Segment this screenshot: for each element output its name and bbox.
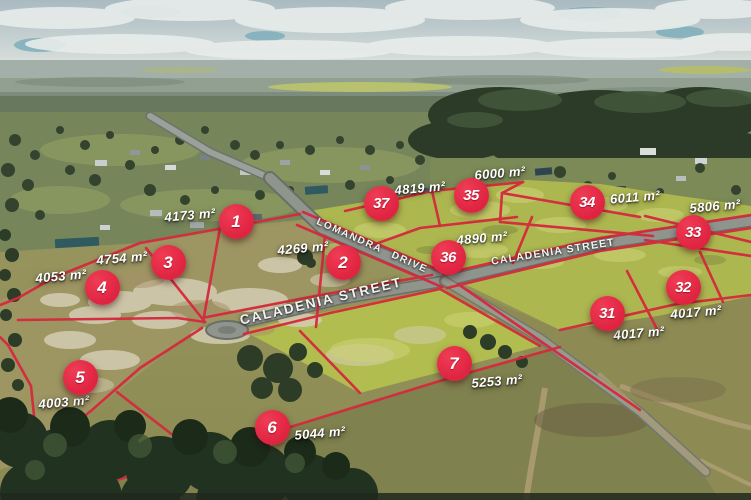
lot-marker-6[interactable]: 6 [255,410,290,445]
lot-marker-34[interactable]: 34 [570,185,605,220]
lot-marker-3[interactable]: 3 [151,245,186,280]
lot-marker-32[interactable]: 32 [666,270,701,305]
lot-marker-31[interactable]: 31 [590,296,625,331]
lot-marker-2[interactable]: 2 [326,245,361,280]
lot-marker-37[interactable]: 37 [364,186,399,221]
lot-marker-33[interactable]: 33 [676,215,711,250]
lot-marker-1[interactable]: 1 [219,204,254,239]
aerial-lot-map: LOMANDRA DRIVE CALADENIA STREET CALADENI… [0,0,751,500]
lot-marker-35[interactable]: 35 [454,178,489,213]
lot-marker-5[interactable]: 5 [63,360,98,395]
lot-marker-4[interactable]: 4 [85,270,120,305]
lot-marker-7[interactable]: 7 [437,346,472,381]
lot-marker-36[interactable]: 36 [431,240,466,275]
